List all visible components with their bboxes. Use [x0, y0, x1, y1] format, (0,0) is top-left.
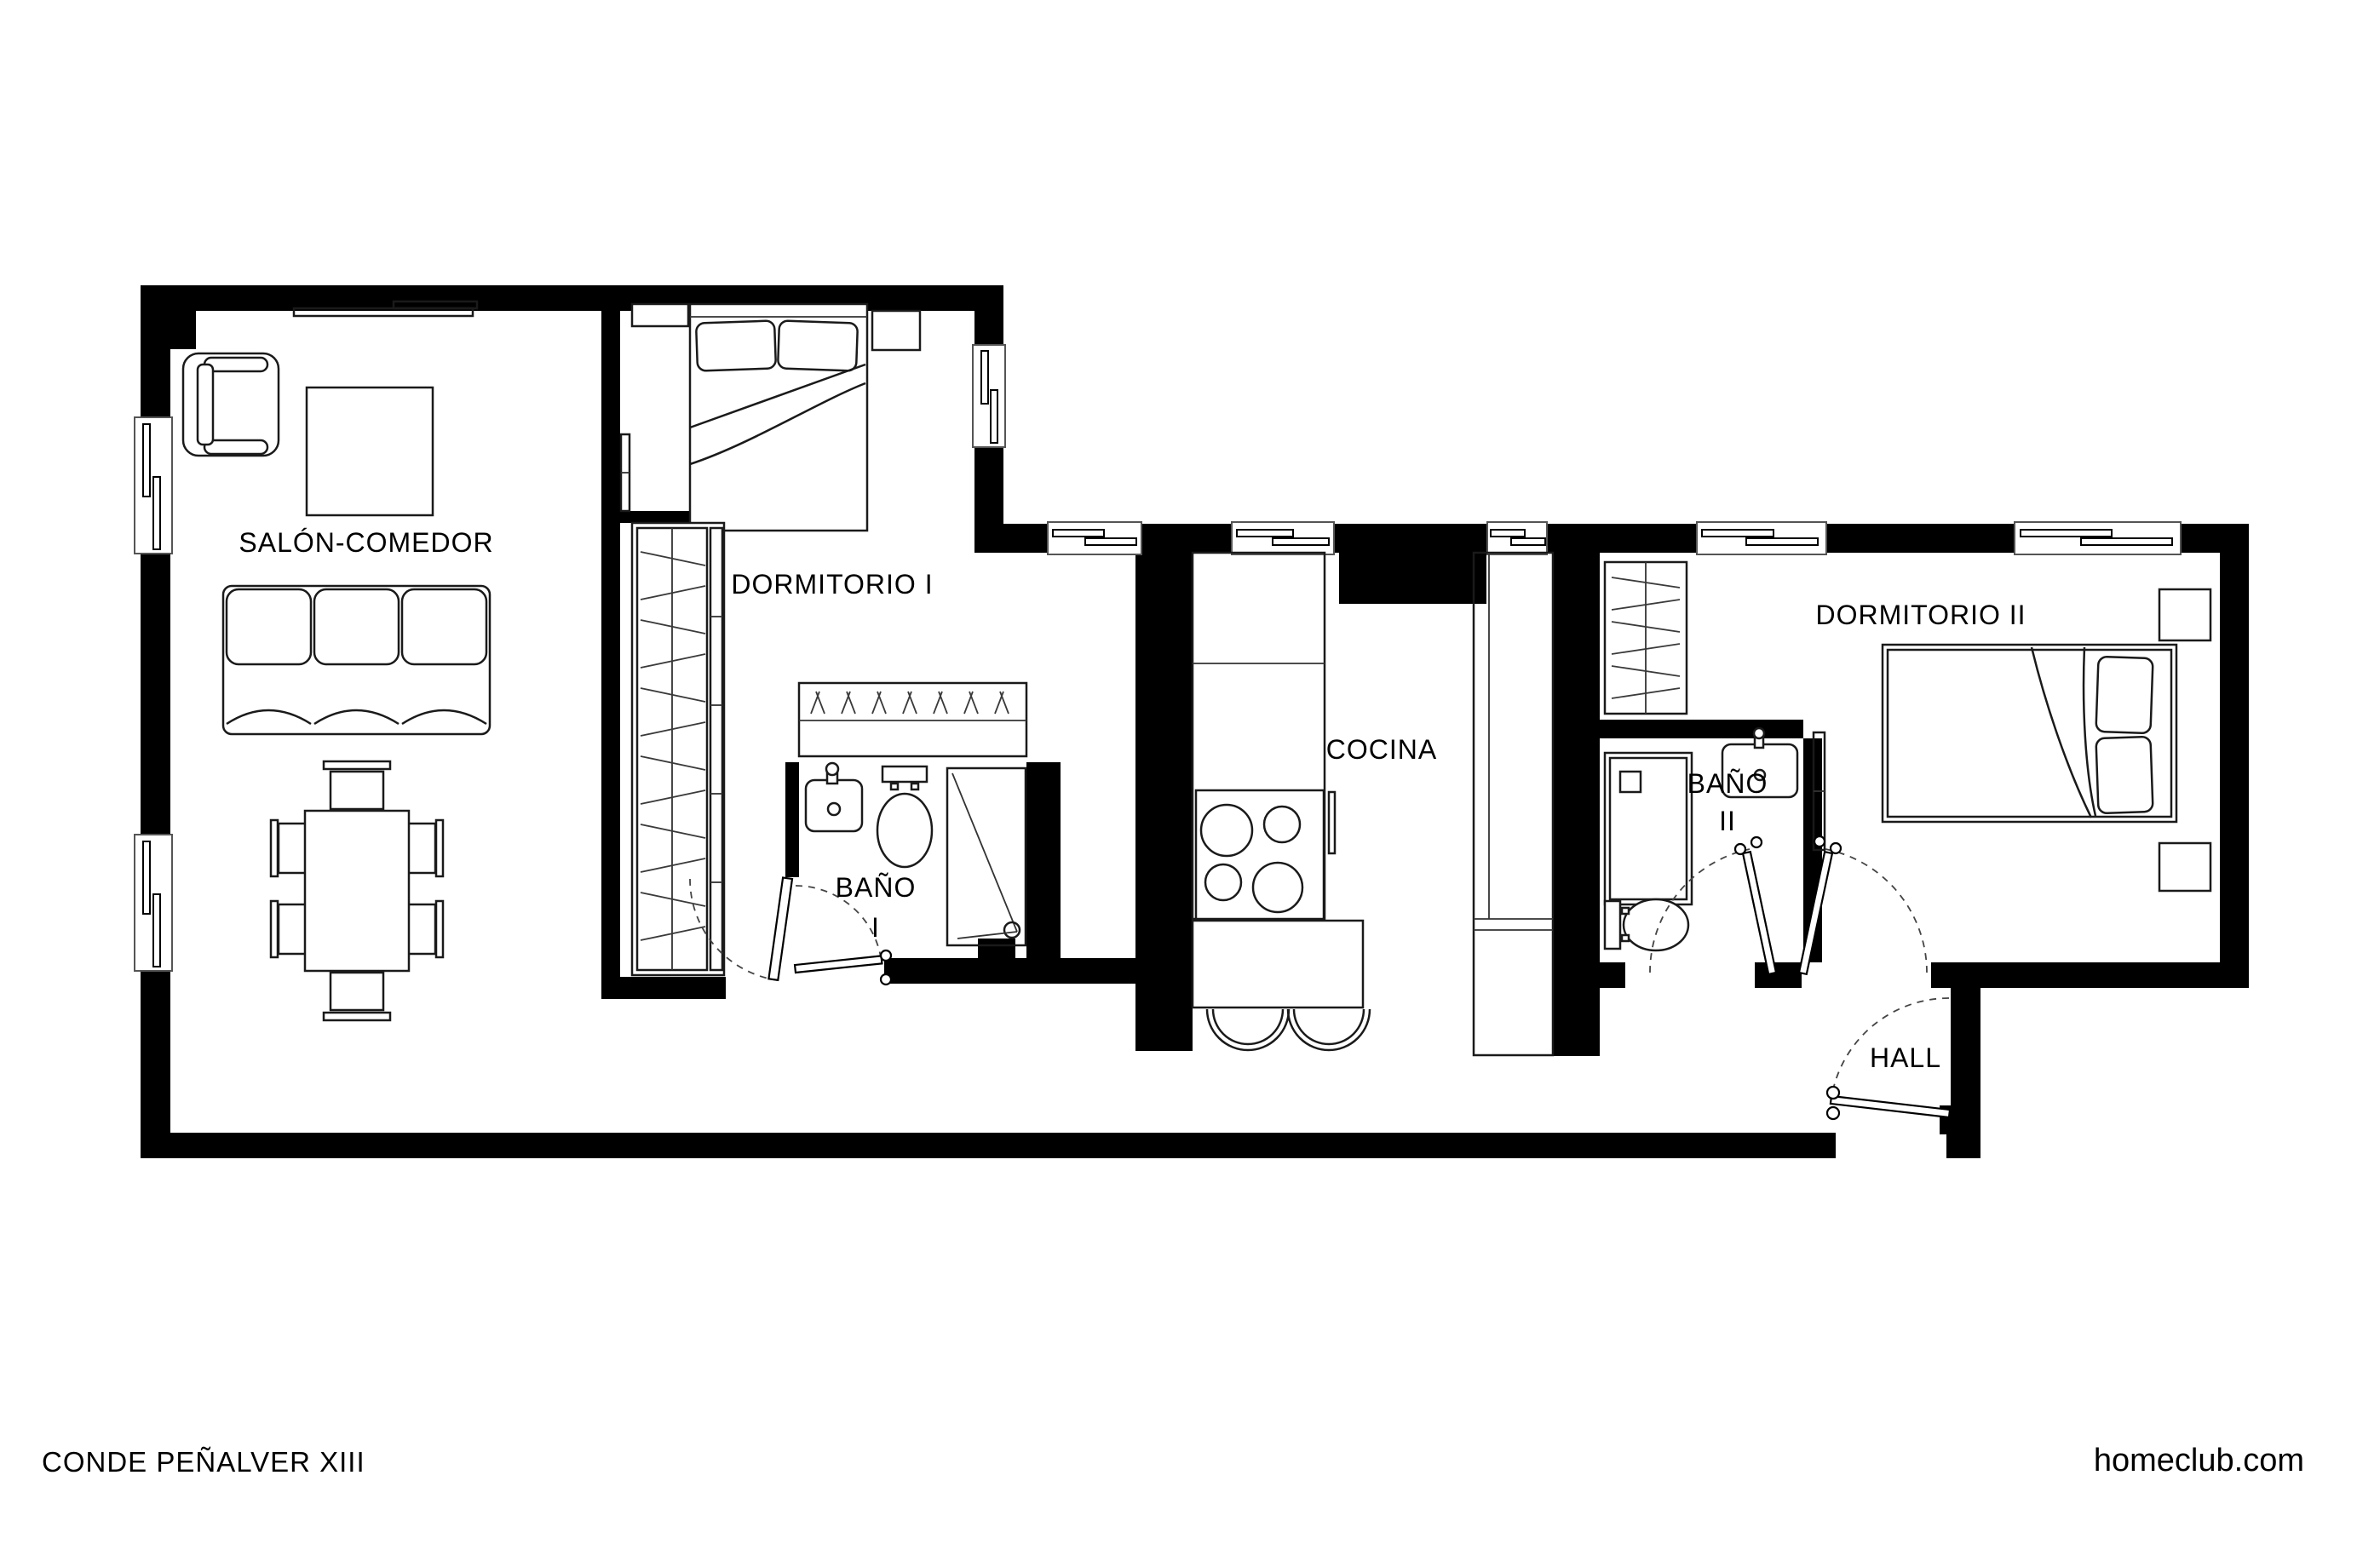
room-salon-comedor	[183, 301, 490, 1020]
kitchen-counter-right	[1474, 553, 1553, 1055]
nightstand-dorm2-bottom	[2159, 843, 2210, 891]
floorplan-page: SALÓN-COMEDOR DORMITORIO I BAÑO I COCINA…	[0, 0, 2380, 1550]
room-label-dormitorio-1: DORMITORIO I	[731, 569, 933, 600]
dining-table-set	[271, 761, 443, 1020]
dresser	[632, 304, 688, 326]
wardrobe-dorm1	[632, 523, 724, 975]
room-labels: SALÓN-COMEDOR DORMITORIO I BAÑO I COCINA…	[239, 527, 2026, 1073]
wardrobe-bano1	[799, 683, 1026, 756]
window-icon-mid-b	[1232, 522, 1334, 554]
dining-table	[305, 811, 409, 971]
nightstand-dorm1	[872, 311, 920, 350]
window-icon-left-2	[135, 835, 172, 971]
toilet-bano1	[877, 766, 932, 867]
room-label-salon-comedor: SALÓN-COMEDOR	[239, 527, 493, 558]
toilet-bano2	[1605, 899, 1688, 950]
window-icon-mid-e	[2015, 522, 2181, 554]
room-bano-2	[1605, 562, 1797, 950]
room-label-bano-1-line2: I	[871, 912, 880, 943]
window-icon-mid-c	[1487, 522, 1547, 554]
cooktop	[1196, 790, 1324, 927]
sofa	[223, 586, 490, 734]
room-label-hall: HALL	[1870, 1042, 1941, 1073]
shower-bano1	[947, 768, 1026, 945]
floor-plan-svg: SALÓN-COMEDOR DORMITORIO I BAÑO I COCINA…	[0, 0, 2380, 1550]
window-icon-mid-d	[1697, 522, 1826, 554]
bed-dorm2	[1883, 645, 2176, 822]
website-url: homeclub.com	[2094, 1443, 2304, 1479]
room-label-cocina: COCINA	[1326, 734, 1437, 765]
room-cocina	[1193, 553, 1553, 1055]
kitchen-island	[1193, 921, 1370, 1050]
window-icon-left-1	[135, 417, 172, 554]
plan-title: CONDE PEÑALVER XIII	[42, 1446, 365, 1478]
oven-handle	[1329, 792, 1335, 853]
window-icon-dorm1-right	[973, 345, 1005, 447]
room-label-dormitorio-2: DORMITORIO II	[1815, 600, 2026, 630]
wardrobe-bano2	[1605, 562, 1687, 714]
nightstand-dorm2-top	[2159, 589, 2210, 640]
bed-dorm1	[690, 304, 867, 531]
armchair	[183, 353, 279, 456]
chair-back	[324, 761, 390, 769]
sink-bano1	[806, 763, 862, 831]
side-table	[307, 387, 433, 515]
door-bano2	[1650, 837, 1776, 974]
radiator-dorm1	[621, 434, 629, 511]
kitchen-counter-left	[1193, 553, 1335, 927]
room-bano-1	[799, 683, 1026, 945]
window-icon-mid-a	[1048, 522, 1141, 554]
shower-bano2	[1605, 753, 1692, 904]
room-label-bano-2-line1: BAÑO	[1687, 768, 1768, 799]
room-dormitorio-2	[1814, 589, 2210, 891]
room-label-bano-2-line2: II	[1719, 806, 1736, 836]
room-label-bano-1-line1: BAÑO	[836, 872, 917, 903]
chair-seat	[331, 772, 383, 809]
